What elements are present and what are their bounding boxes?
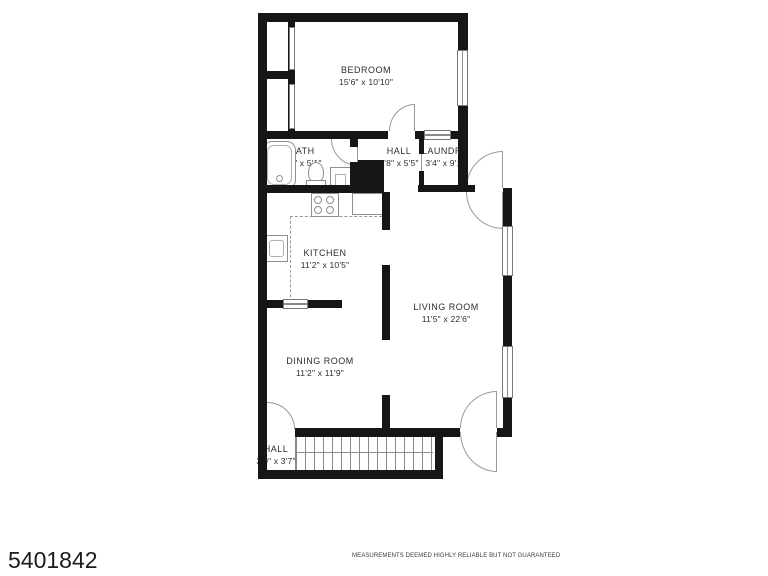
- door-swing: [267, 402, 295, 429]
- window: [457, 50, 468, 106]
- cased-opening: [424, 130, 451, 140]
- counter-edge: [290, 216, 292, 302]
- room-label-living-room: LIVING ROOM 11'5" x 22'6": [394, 302, 498, 324]
- wall-segment: [415, 131, 424, 139]
- wall-segment: [258, 13, 267, 479]
- wall-segment: [258, 71, 295, 79]
- wall-segment: [295, 428, 460, 437]
- room-label-dining-room: DINING ROOM 11'2" x 11'9": [268, 356, 372, 378]
- bathtub-drain: [276, 175, 283, 182]
- closet-door: [289, 27, 295, 70]
- door-swing: [389, 104, 415, 131]
- window: [502, 226, 513, 276]
- wall-segment: [258, 300, 283, 308]
- door-swing: [466, 192, 503, 229]
- cased-opening: [283, 299, 308, 309]
- stove-burner: [326, 206, 334, 214]
- closet-door: [289, 84, 295, 129]
- room-dimensions: 15'6" x 10'10": [306, 77, 426, 87]
- room-label-bedroom: BEDROOM 15'6" x 10'10": [306, 65, 426, 87]
- room-name: BEDROOM: [306, 65, 426, 75]
- wall-segment: [258, 470, 443, 479]
- wall-segment: [419, 139, 424, 154]
- door-swing: [460, 391, 497, 428]
- stove-burner: [314, 196, 322, 204]
- room-name: DINING ROOM: [268, 356, 372, 366]
- wall-segment: [435, 437, 443, 479]
- room-dimensions: 11'2" x 10'5": [283, 260, 367, 270]
- wall-segment: [350, 139, 358, 147]
- disclaimer-text: MEASUREMENTS DEEMED HIGHLY RELIABLE BUT …: [352, 553, 560, 559]
- floor-plan: BEDROOM 15'6" x 10'10" BATH 8'9" x 5'1" …: [0, 0, 768, 576]
- staircase: [295, 437, 434, 470]
- wall-segment: [451, 131, 468, 139]
- door-swing: [460, 432, 497, 472]
- wall-segment: [419, 171, 424, 186]
- room-dimensions: 11'5" x 22'6": [394, 314, 498, 324]
- wall-segment: [382, 265, 390, 340]
- wall-segment: [258, 131, 388, 139]
- refrigerator: [352, 193, 384, 215]
- wall-segment: [258, 13, 468, 22]
- room-name: KITCHEN: [283, 248, 367, 258]
- kitchen-sink-basin: [269, 240, 284, 257]
- window: [502, 346, 513, 398]
- room-name: LIVING ROOM: [394, 302, 498, 312]
- room-dimensions: 11'2" x 11'9": [268, 368, 372, 378]
- wall-segment: [258, 185, 384, 193]
- wall-segment: [307, 300, 342, 308]
- stove-burner: [314, 206, 322, 214]
- stove-burner: [326, 196, 334, 204]
- staircase-rail: [295, 452, 433, 453]
- room-label-kitchen: KITCHEN 11'2" x 10'5": [283, 248, 367, 270]
- wall-segment: [382, 395, 390, 428]
- wall-segment: [382, 192, 390, 230]
- wall-segment: [418, 185, 475, 192]
- listing-id: 5401842: [8, 547, 98, 574]
